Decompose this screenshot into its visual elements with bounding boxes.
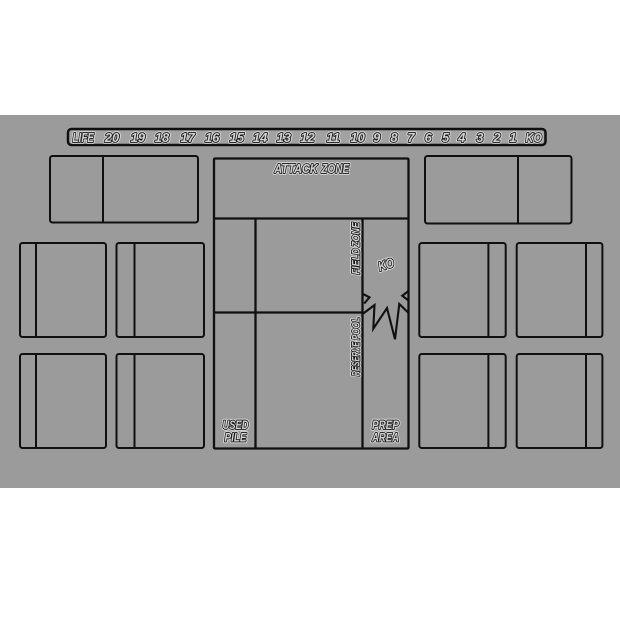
svg-text:18: 18 [155, 130, 170, 145]
svg-text:5: 5 [442, 130, 450, 145]
svg-text:PILE: PILE [225, 433, 247, 445]
svg-text:FIELD: FIELD [351, 248, 363, 274]
svg-text:7: 7 [407, 130, 415, 145]
svg-text:AREA: AREA [371, 433, 399, 445]
svg-text:17: 17 [180, 130, 195, 145]
svg-text:LIFE: LIFE [73, 131, 95, 145]
svg-text:8: 8 [390, 130, 398, 145]
svg-text:PREP: PREP [372, 420, 399, 432]
svg-text:ZONE: ZONE [351, 222, 363, 248]
svg-text:12: 12 [300, 130, 315, 145]
svg-text:ATTACK: ATTACK [273, 161, 319, 176]
svg-text:20: 20 [104, 130, 120, 145]
svg-text:2: 2 [492, 130, 501, 145]
svg-text:6: 6 [425, 130, 433, 145]
svg-text:USED: USED [223, 420, 249, 432]
svg-text:14: 14 [253, 130, 268, 145]
svg-text:RESERVE: RESERVE [351, 342, 363, 377]
svg-text:16: 16 [205, 130, 220, 145]
svg-text:KO: KO [526, 130, 543, 145]
svg-text:13: 13 [277, 130, 292, 145]
svg-text:10: 10 [350, 130, 365, 145]
svg-text:ZONE: ZONE [321, 161, 350, 176]
svg-text:POOL: POOL [351, 317, 363, 340]
svg-text:3: 3 [476, 130, 484, 145]
svg-text:15: 15 [230, 130, 245, 145]
svg-text:1: 1 [509, 130, 516, 145]
svg-text:19: 19 [131, 130, 146, 145]
svg-text:11: 11 [327, 130, 341, 145]
svg-text:4: 4 [457, 130, 466, 145]
svg-text:9: 9 [373, 130, 381, 145]
